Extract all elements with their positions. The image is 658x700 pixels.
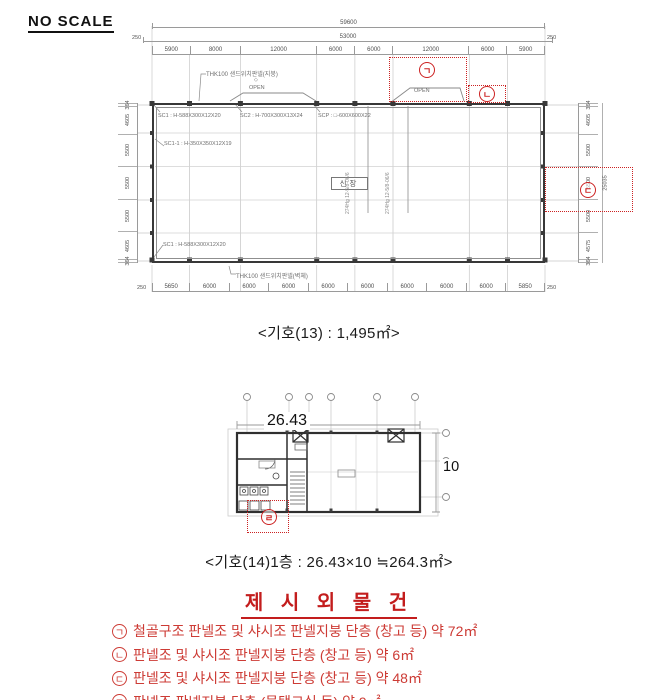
item-marker-g: ㄱ (112, 624, 127, 639)
plan2-width-dimension: 26.43 (264, 412, 310, 430)
plan2-height-dimension: 10 (440, 459, 462, 475)
dim-value: 53000 (143, 34, 553, 40)
item-marker-r: ㄹ (112, 694, 127, 700)
item-marker-n: ㄴ (112, 647, 127, 662)
item-text: 판넬조 및 샤시조 판넬지붕 단층 (창고 등) 약 6㎡ (133, 645, 414, 665)
marker-circle-n: ㄴ (479, 86, 495, 102)
wall-panel-annotation: THK100 샌드위치판넬(벽체) (236, 271, 308, 280)
column-spec-sc1: SC1 : H-588X300X12X20 (158, 113, 221, 119)
dim-end-right: 250 (547, 35, 556, 41)
plan1-bottom-dimension-row: 5650 6000 6000 6000 6000 6000 6000 6000 … (152, 283, 545, 292)
plan1-caption: <기호(13) : 1,495㎡> (0, 322, 658, 343)
item-marker-d: ㄷ (112, 671, 127, 686)
column-note-2: 274Hg 12-5/8-06/6 (385, 172, 391, 214)
item-text: 판넬조 및 샤시조 판넬지붕 단층 (창고 등) 약 48㎡ (133, 668, 422, 688)
extra-buildings-list: ㄱ 철골구조 판넬조 및 샤시조 판넬지붕 단층 (창고 등) 약 72㎡ ㄴ … (112, 621, 477, 700)
dim-value: 59600 (152, 20, 545, 26)
marker-circle-g: ㄱ (419, 62, 435, 78)
marker-circle-r: ㄹ (261, 509, 277, 525)
appraisal-drawing-page: { "colors": {"red": "#cc2222", "line_dar… (0, 0, 658, 700)
plan1-inner-overall-dimension: 53000 (143, 34, 553, 42)
dim-end-left: 250 (137, 285, 146, 291)
no-scale-label: NO SCALE (28, 13, 114, 33)
roof-panel-annotation: THK100 샌드위치판넬(지붕) (206, 69, 278, 78)
section-title: 제 시 외 물 건 (0, 586, 658, 619)
column-spec-scp: SCP : □-600X600X22 (318, 113, 371, 119)
plan2-linework (0, 380, 658, 560)
plan2-caption: <기호(14)1층 : 26.43×10 ≒264.3㎡> (0, 551, 658, 572)
column-note-1: 274Hg 12-5/8-06/6 (345, 172, 351, 214)
item-text: 판넬조 판넬지붕 단층 (물탱크실 등) 약 9㎡ (133, 692, 381, 700)
list-item: ㄹ 판넬조 판넬지붕 단층 (물탱크실 등) 약 9㎡ (112, 692, 477, 700)
marker-circle-d: ㄷ (580, 182, 596, 198)
column-spec-sc1-1: SC1-1 : H-350X350X12X19 (164, 141, 232, 147)
plan1-overall-dimension: 59600 (152, 20, 545, 28)
list-item: ㄷ 판넬조 및 샤시조 판넬지붕 단층 (창고 등) 약 48㎡ (112, 668, 477, 688)
plan1-left-dimension-column: 364 4605 5500 5500 5500 4605 364 (118, 103, 138, 263)
dim-end-left: 250 (132, 35, 141, 41)
diamond-icon: ◇ (254, 77, 258, 83)
open-label-left: OPEN (249, 85, 265, 91)
dim-end-right: 250 (547, 285, 556, 291)
item-text: 철골구조 판넬조 및 샤시조 판넬지붕 단층 (창고 등) 약 72㎡ (133, 621, 477, 641)
column-spec-sc1-bottom: SC1 : H-588X300X12X20 (163, 242, 226, 248)
list-item: ㄴ 판넬조 및 샤시조 판넬지붕 단층 (창고 등) 약 6㎡ (112, 645, 477, 665)
plan1-top-dimension-row: 5900 8000 12000 6000 6000 12000 6000 590… (152, 46, 545, 55)
column-spec-sc2: SC2 : H-700X300X13X24 (240, 113, 303, 119)
list-item: ㄱ 철골구조 판넬조 및 샤시조 판넬지붕 단층 (창고 등) 약 72㎡ (112, 621, 477, 641)
